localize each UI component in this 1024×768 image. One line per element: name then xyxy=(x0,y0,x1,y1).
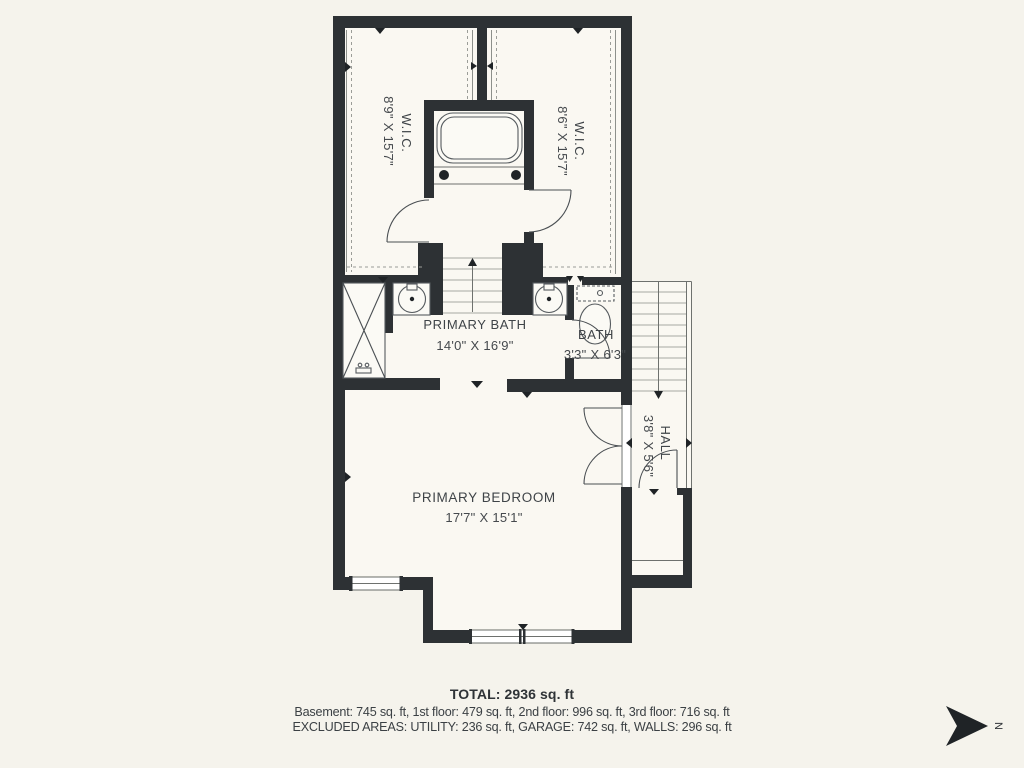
wic-left-dims: 8'9" X 15'7" xyxy=(381,96,396,166)
primary-bath-dims: 14'0" X 16'9" xyxy=(436,338,513,353)
floor-plan-svg: W.I.C. 8'9" X 15'7" W.I.C. 8'6" X 15'7" … xyxy=(0,0,1024,768)
area-summary: TOTAL: 2936 sq. ft Basement: 745 sq. ft,… xyxy=(293,686,733,734)
total-area-text: TOTAL: 2936 sq. ft xyxy=(450,686,574,702)
bath-dims: 3'3" X 6'3" xyxy=(564,347,626,362)
compass: N xyxy=(946,706,1004,746)
toilet-tank xyxy=(577,286,614,301)
excluded-areas-text: EXCLUDED AREAS: UTILITY: 236 sq. ft, GAR… xyxy=(293,720,733,734)
primary-bath-label: PRIMARY BATH xyxy=(423,317,526,332)
north-arrow-icon xyxy=(946,706,988,746)
primary-bedroom-dims: 17'7" X 15'1" xyxy=(445,510,522,525)
primary-bedroom-label: PRIMARY BEDROOM xyxy=(412,490,556,505)
wic-left-label: W.I.C. xyxy=(399,114,414,153)
floor-areas-text: Basement: 745 sq. ft, 1st floor: 479 sq.… xyxy=(294,705,730,719)
north-label: N xyxy=(992,722,1004,730)
tub-fixture-dot xyxy=(439,170,449,180)
shower-valve xyxy=(356,368,371,373)
tub-fixture-dot xyxy=(511,170,521,180)
floor-plan-page: W.I.C. 8'9" X 15'7" W.I.C. 8'6" X 15'7" … xyxy=(0,0,1024,768)
bath-label: BATH xyxy=(578,327,614,342)
hall-label: HALL xyxy=(658,426,673,461)
hall-dims: 3'8" X 5'6" xyxy=(641,415,656,477)
wic-right-label: W.I.C. xyxy=(572,122,587,161)
wic-right-dims: 8'6" X 15'7" xyxy=(555,106,570,176)
